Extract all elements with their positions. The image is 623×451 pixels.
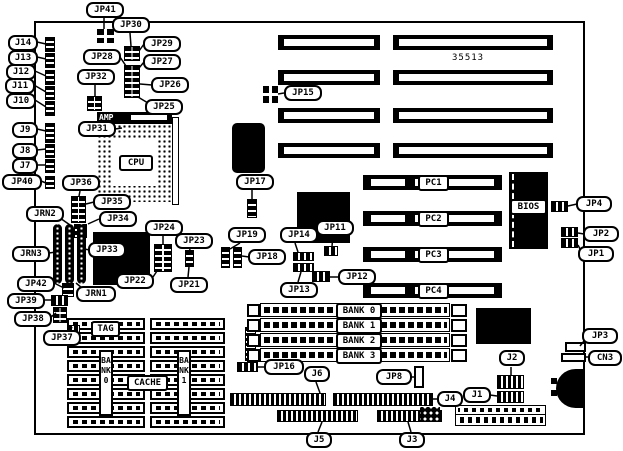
connector-jp40 xyxy=(45,176,55,189)
simm-clip xyxy=(247,349,260,362)
isa-slot xyxy=(278,143,380,158)
cache-chip xyxy=(150,416,225,428)
label-j11: J11 xyxy=(5,78,35,94)
jumper-jp11 xyxy=(324,246,338,256)
chip-near-j2 xyxy=(476,308,531,344)
connector-j12 xyxy=(45,70,55,85)
simm-clip xyxy=(451,334,467,347)
label-j9: J9 xyxy=(12,122,38,138)
label-jp8: JP8 xyxy=(376,369,412,385)
label-jp38: JP38 xyxy=(14,311,52,327)
label-jp25: JP25 xyxy=(145,99,183,115)
jumper-block-jp32 xyxy=(87,96,102,111)
label-jp11: JP11 xyxy=(316,220,354,236)
header-jrn xyxy=(77,224,86,284)
isa-slot xyxy=(393,143,553,158)
connector-j8 xyxy=(45,144,55,158)
jumper-jp16 xyxy=(237,362,258,372)
label-jp29: JP29 xyxy=(143,36,181,52)
label-j6: J6 xyxy=(304,366,330,382)
label-j2: J2 xyxy=(499,350,525,366)
label-cache: CACHE xyxy=(127,375,168,391)
isa-slot xyxy=(393,70,553,85)
label-pc4: PC4 xyxy=(418,283,449,299)
connector-jp8 xyxy=(414,366,424,388)
label-jp28: JP28 xyxy=(83,49,121,65)
jumper-row-jp14 xyxy=(293,252,314,261)
label-jp19: JP19 xyxy=(228,227,266,243)
label-j14: J14 xyxy=(8,35,38,51)
jumper-block-jp30-jp29 xyxy=(124,46,140,61)
cache-chip xyxy=(150,318,225,330)
part-number: 35513 xyxy=(452,53,484,63)
label-jp23: JP23 xyxy=(175,233,213,249)
label-bank3: BANK 3 xyxy=(336,348,382,364)
label-jp42: JP42 xyxy=(17,276,55,292)
label-jp16: JP16 xyxy=(264,359,304,375)
connector-j10 xyxy=(45,101,55,116)
cache-chip xyxy=(150,332,225,344)
jumper-jp41 xyxy=(97,29,114,43)
label-jp18: JP18 xyxy=(248,249,286,265)
connector-j2 xyxy=(497,375,524,389)
connector-j4 xyxy=(333,393,433,406)
header-jrn xyxy=(53,224,62,284)
simm-clip xyxy=(451,349,467,362)
jumper-block-jp28-jp25 xyxy=(124,65,140,98)
label-j7: J7 xyxy=(12,158,38,174)
label-jrn3: JRN3 xyxy=(12,246,50,262)
jumper-jp39 xyxy=(51,295,68,306)
label-cn3: CN3 xyxy=(588,350,622,366)
label-jp12: JP12 xyxy=(338,269,376,285)
label-j10: J10 xyxy=(6,93,36,109)
simm-clip xyxy=(451,304,467,317)
label-jp35: JP35 xyxy=(93,194,131,210)
jumper-jp15 xyxy=(263,86,278,103)
jumper-strip-jp19 xyxy=(221,247,230,268)
label-j3: J3 xyxy=(399,432,425,448)
label-jp33: JP33 xyxy=(88,242,126,258)
label-jp36: JP36 xyxy=(62,175,100,191)
label-bank0: BANK 0 xyxy=(336,303,382,319)
label-tag: TAG xyxy=(91,321,120,337)
simm-clip xyxy=(247,304,260,317)
label-j8: J8 xyxy=(12,143,38,159)
label-bank2: BANK 2 xyxy=(336,333,382,349)
keyboard-connector-tab xyxy=(551,378,557,384)
label-bank1: BANK 1 xyxy=(336,318,382,334)
jumper-block-jp36-jp35 xyxy=(71,196,86,223)
jumper-jp23-jp21 xyxy=(185,250,194,267)
simm-clip xyxy=(451,319,467,332)
label-jp26: JP26 xyxy=(151,77,189,93)
label-jp14: JP14 xyxy=(280,227,318,243)
label-jp40: JP40 xyxy=(2,174,42,190)
connector-j11 xyxy=(45,86,55,100)
label-jp4: JP4 xyxy=(576,196,612,212)
power-connector-bottom xyxy=(455,414,546,426)
label-jp22: JP22 xyxy=(116,273,154,289)
jumper-jp38 xyxy=(53,307,67,323)
isa-slot xyxy=(278,70,380,85)
isa-slot xyxy=(393,108,553,123)
label-jp37: JP37 xyxy=(43,330,81,346)
motherboard-jumper-diagram: 35513 PC1 PC2 PC3 PC4 BIOS AMP CPU xyxy=(0,0,623,451)
label-j1: J1 xyxy=(463,387,491,403)
label-bank0-vertical: BANK0 xyxy=(99,350,113,416)
label-jp17: JP17 xyxy=(236,174,274,190)
label-jp41: JP41 xyxy=(86,2,124,18)
label-jp2: JP2 xyxy=(583,226,619,242)
simm-clip xyxy=(247,334,260,347)
jumper-strip-jp18 xyxy=(233,247,242,268)
label-cpu: CPU xyxy=(119,155,153,171)
connector-j7 xyxy=(45,159,55,173)
connector-cn3 xyxy=(561,353,586,362)
isa-slot xyxy=(393,35,553,50)
header-jrn xyxy=(65,224,74,284)
label-j4: J4 xyxy=(437,391,463,407)
jumper-block-jp24-jp22 xyxy=(154,244,172,272)
jumper-jp12 xyxy=(312,271,330,282)
label-j5: J5 xyxy=(306,432,332,448)
label-bank1-vertical: BANK1 xyxy=(177,350,191,416)
jumper-jp1 xyxy=(561,238,578,248)
label-bios: BIOS xyxy=(510,199,547,215)
label-jp27: JP27 xyxy=(143,54,181,70)
label-jp30: JP30 xyxy=(112,17,150,33)
label-pc3: PC3 xyxy=(418,247,449,263)
label-jp15: JP15 xyxy=(284,85,322,101)
isa-slot xyxy=(278,35,380,50)
label-jp32: JP32 xyxy=(77,69,115,85)
label-jrn1: JRN1 xyxy=(76,286,116,302)
label-pc1: PC1 xyxy=(418,175,449,191)
zif-lever xyxy=(172,117,179,205)
label-jp39: JP39 xyxy=(7,293,45,309)
simm-clip xyxy=(247,319,260,332)
isa-slot xyxy=(278,108,380,123)
jumper-jp17 xyxy=(247,199,257,218)
six-pin-connector xyxy=(420,407,440,421)
connector-j9 xyxy=(45,123,55,143)
connector-jp3 xyxy=(565,342,586,352)
label-jp3: JP3 xyxy=(582,328,618,344)
label-jp34: JP34 xyxy=(99,211,137,227)
connector-j6 xyxy=(230,393,326,406)
label-jp1: JP1 xyxy=(578,246,614,262)
label-jp31: JP31 xyxy=(78,121,116,137)
cache-chip xyxy=(67,416,145,428)
jp17-chip xyxy=(232,123,265,173)
keyboard-connector-tab xyxy=(551,390,557,396)
label-pc2: PC2 xyxy=(418,211,449,227)
connector-j14 xyxy=(45,37,55,52)
label-jp21: JP21 xyxy=(170,277,208,293)
jumper-jp2 xyxy=(561,227,578,237)
connector-j5 xyxy=(277,410,358,422)
connector-j13 xyxy=(45,53,55,68)
label-jrn2: JRN2 xyxy=(26,206,64,222)
label-jp13: JP13 xyxy=(280,282,318,298)
jumper-row-jp13 xyxy=(293,263,314,272)
jumper-jp4 xyxy=(551,201,568,212)
connector-j1 xyxy=(497,391,524,403)
